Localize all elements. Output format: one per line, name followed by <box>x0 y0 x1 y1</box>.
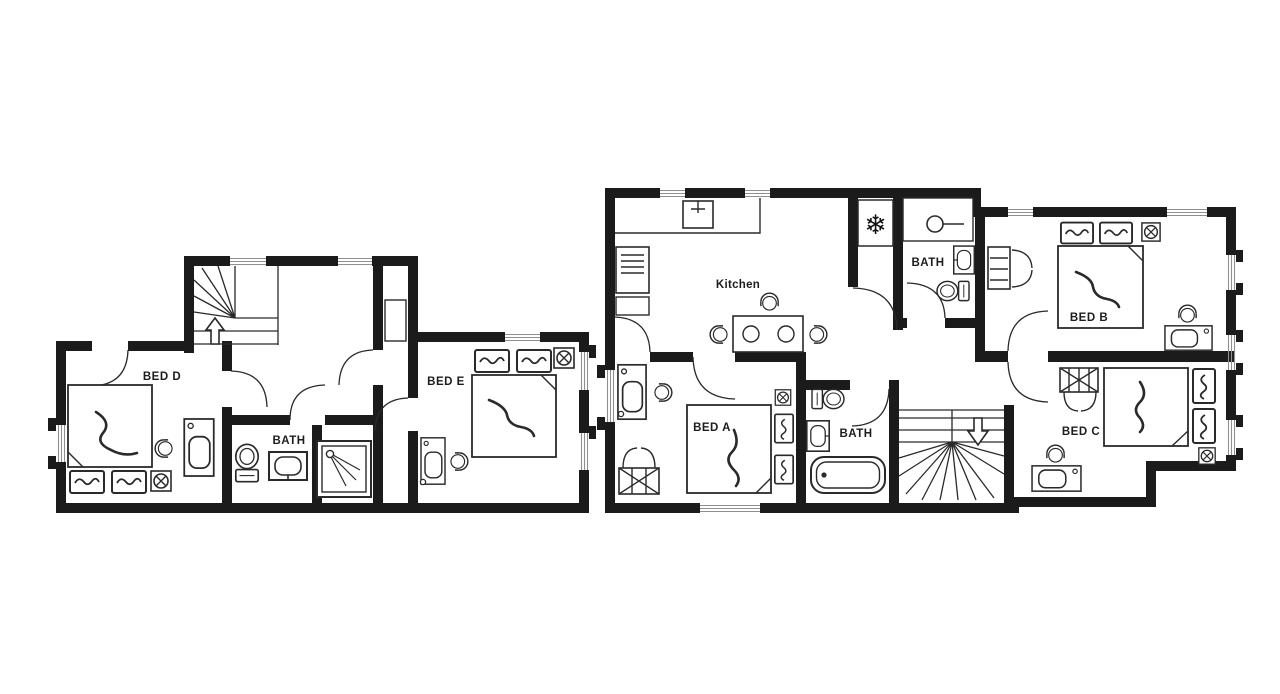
door-arc <box>339 350 373 385</box>
chair-icon <box>1179 305 1196 322</box>
cupboard-icon <box>385 300 406 341</box>
socket-icon <box>1142 223 1160 241</box>
sink-icon <box>269 452 307 480</box>
door-arc <box>614 317 650 352</box>
pillow-icon <box>112 471 146 493</box>
room-label-bed-c: BED C <box>1062 426 1100 438</box>
freezer: ❄ <box>858 200 893 246</box>
toilet-icon <box>937 281 969 300</box>
window <box>582 433 588 470</box>
pillow-icon <box>475 350 509 372</box>
wardrobe-icon <box>619 448 659 494</box>
window <box>505 335 540 341</box>
room-label-bath-top: BATH <box>911 257 944 269</box>
room-label-bath-bottom: BATH <box>839 428 872 440</box>
dining-table-icon <box>733 316 803 352</box>
window <box>1008 210 1033 216</box>
pillow-icon <box>1193 409 1215 443</box>
sink-icon <box>954 246 975 274</box>
window <box>700 506 760 512</box>
bath-top-fixtures <box>903 198 974 301</box>
toilet-icon <box>812 389 844 408</box>
bath-bottom-fixtures <box>807 389 885 493</box>
pillow-icon <box>1193 369 1215 403</box>
desk-icon <box>1165 305 1212 350</box>
room-label-kitchen: Kitchen <box>716 279 760 291</box>
pillow-icon <box>517 350 551 372</box>
chair-icon <box>1047 445 1064 462</box>
staircase-up <box>194 266 278 345</box>
room-label-bed-a: BED A <box>693 422 731 434</box>
wardrobe-icon <box>1060 368 1098 411</box>
wardrobe-icon <box>988 247 1032 289</box>
door-arc <box>1008 311 1048 351</box>
window <box>745 191 770 197</box>
bed-icon <box>472 350 556 457</box>
pillow-icon <box>775 455 793 483</box>
cooker-icon <box>616 247 649 293</box>
window <box>230 259 266 265</box>
socket-icon <box>1199 448 1215 464</box>
first-floor-plan <box>48 256 596 513</box>
pillow-icon <box>70 471 104 493</box>
socket-icon <box>775 390 790 405</box>
window <box>608 370 614 422</box>
door-arc <box>290 385 325 420</box>
kitchen-unit <box>616 297 649 315</box>
window <box>660 191 685 197</box>
pillow-icon <box>775 414 793 442</box>
sink-icon <box>807 421 829 451</box>
desk-icon <box>420 438 467 485</box>
chair-icon <box>155 440 172 457</box>
freezer-icon: ❄ <box>864 210 887 241</box>
floorplan-canvas: ❄ <box>0 0 1280 694</box>
pillow-icon <box>1061 223 1093 244</box>
bed-icon <box>1104 368 1215 446</box>
staircase-down <box>899 410 1004 500</box>
toilet-icon <box>236 444 258 481</box>
socket-icon <box>554 348 574 368</box>
desk-icon <box>1032 445 1081 491</box>
door-arc <box>1008 362 1048 402</box>
door-arc <box>853 288 897 330</box>
pillow-icon <box>1100 223 1132 244</box>
window <box>582 352 588 390</box>
window <box>1229 420 1235 455</box>
door-arc <box>231 371 267 407</box>
ground-floor-plan: ❄ <box>597 188 1243 513</box>
chair-icon <box>761 293 778 310</box>
room-label-bath-first: BATH <box>272 435 305 447</box>
shower-icon <box>317 441 371 497</box>
bed-icon <box>687 405 793 493</box>
chair-icon <box>810 326 827 343</box>
window <box>1167 210 1207 216</box>
window <box>338 259 372 265</box>
kitchen-fixtures <box>615 198 827 352</box>
door-arc <box>852 389 889 426</box>
room-label-bed-b: BED B <box>1070 312 1108 324</box>
desk-icon <box>155 419 214 476</box>
kitchen-sink-icon <box>683 201 713 228</box>
window <box>1229 255 1235 290</box>
chair-icon <box>655 384 672 401</box>
window <box>59 425 65 462</box>
chair-icon <box>451 453 468 470</box>
bed-icon <box>68 385 152 493</box>
desk-icon <box>618 365 672 419</box>
floorplan-drawing: ❄ <box>0 0 1280 694</box>
socket-icon <box>151 471 171 491</box>
down-arrow-icon <box>968 418 988 445</box>
chair-icon <box>710 326 727 343</box>
door-arc <box>693 357 735 399</box>
door-arc <box>92 350 128 386</box>
bathtub-icon <box>811 457 885 493</box>
room-label-bed-d: BED D <box>143 371 181 383</box>
room-label-bed-e: BED E <box>427 376 465 388</box>
